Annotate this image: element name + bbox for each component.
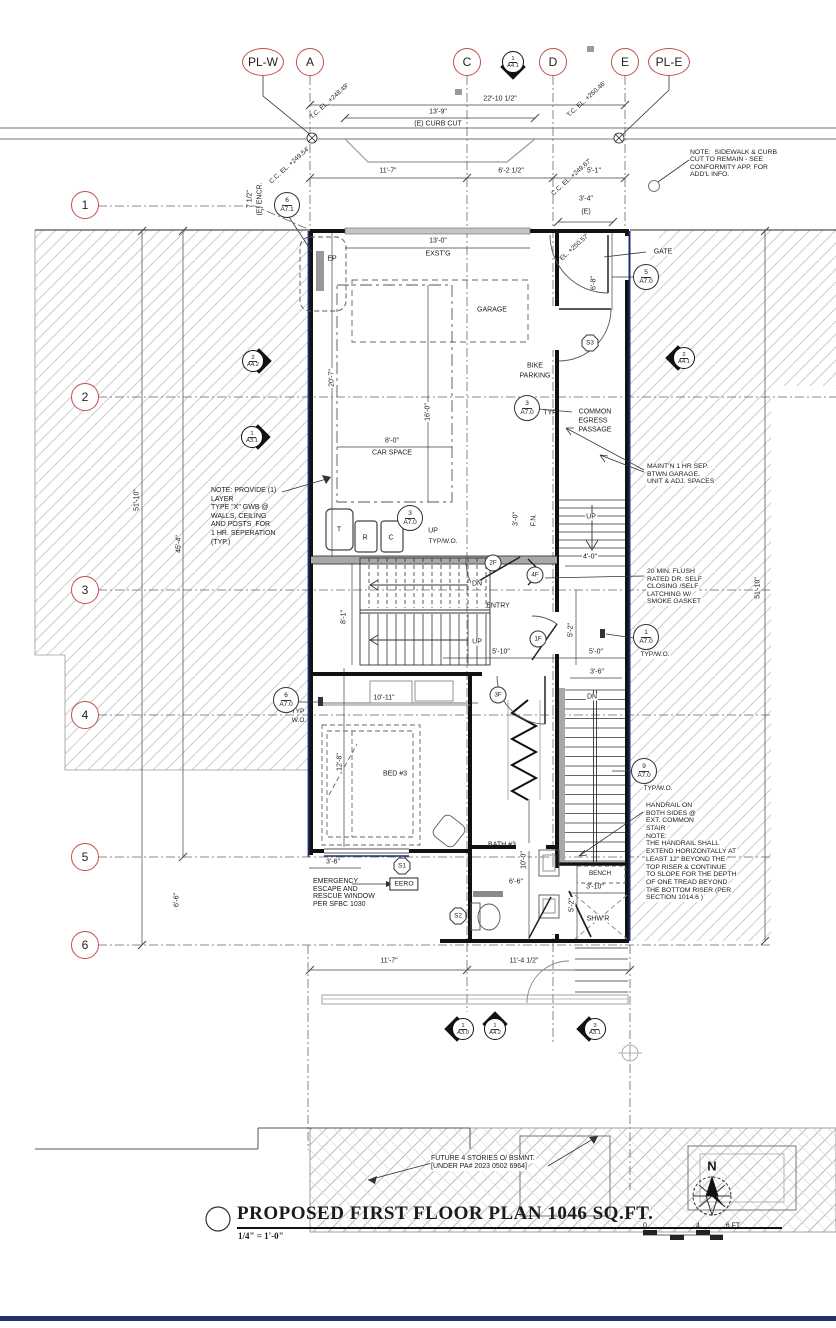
future-note: FUTURE 4 STORIES O/ BSMNT.[UNDER PA# 202… [430,1155,536,1171]
stair-direction-label: DN [586,694,598,701]
section-marker-2-a4.1: 2A4.1 [671,345,697,371]
maintain-note: MAINT'N 1 HR SEP.BTWN GARAGE,UNIT & ADJ.… [646,463,715,486]
dim-label: 8'-1" [341,609,348,625]
dim-label: 4'-0" [582,554,598,561]
grid-bubble-3: 3 [71,576,99,604]
eero-tag: EERO [389,878,418,891]
dim-label: 20'-7" [329,368,336,388]
room-label: PASSAGE [579,427,612,434]
door-20min-note: 20 MIN. FLUSHRATED DR. SELFCLOSING /SELF… [646,568,703,606]
dim-label: 5'-2" [568,622,575,638]
dim-label: 6'-2 1/2" [498,168,524,175]
callout-suffix: TYP/W.O. [429,539,458,546]
dim-label: 3'-6" [589,669,605,676]
plan-scale: 1/4" = 1'-0" [238,1231,284,1241]
grid-bubble-pl-w: PL-W [242,48,284,76]
room-label: COMMON [579,409,612,416]
detail-callout-3-a7.0: 3A7.0 [397,505,423,531]
dim-label: 5'-2" [569,897,576,913]
dim-label: 6'-6" [508,879,524,886]
sidewalk-lines [0,128,836,230]
grid-bubble-4: 4 [71,701,99,729]
dim-label: 3'-4" [579,196,593,203]
plan-linework [0,0,836,1328]
bin-label-t: T [337,527,341,534]
detail-callout-6-a7.1: 6A7.1 [274,192,300,218]
callout-suffix: W.O. [292,718,306,725]
door-tag-4f: 4F [527,567,544,584]
bin-label-c: C [388,535,393,542]
dim-label: 10'-0" [521,850,528,870]
grid-bubble-c: C [453,48,481,76]
dim-label: 5'-1" [587,168,601,175]
detail-callout-1-a7.0: 1A7.0 [633,624,659,650]
dim-label: 6'-8" [591,276,598,290]
door-tag-3f: 3F [490,687,507,704]
room-label: PARKING [520,373,551,380]
dim-label: 13'-0" [429,238,447,245]
handrail-note: HANDRAIL ONBOTH SIDES @EXT. COMMONSTAIRN… [645,802,737,902]
callout-suffix: TYP [543,410,557,417]
floor-plan-canvas: PROPOSED FIRST FLOOR PLAN 1046 SQ.FT. 1/… [0,0,836,1328]
fixtures [300,237,627,939]
bin-label-r: R [362,535,367,542]
dim-label: 8'-0" [384,438,400,445]
room-label: BED #3 [383,771,407,778]
dim-label: 13'-9" [429,109,447,116]
grid-bubble-d: D [539,48,567,76]
section-marker-2-a4.2: 2A4.2 [240,348,266,374]
room-label: SHW'R [586,916,611,923]
dim-label: 3'-6" [325,859,341,866]
section-marker-3-a3.1: 3A3.1 [582,1016,608,1042]
dim-label: 3'-10" [585,884,605,891]
detail-callout-5-a7.0: 5A7.0 [633,264,659,290]
detail-callout-6-a7.0: 6A7.0 [273,687,299,713]
dim-label: 45'-4" [176,535,183,553]
grid-bubble-5: 5 [71,843,99,871]
grid-bubble-pl-e: PL-E [648,48,690,76]
dim-label: 51'-10" [755,577,762,599]
dim-label: 16'-0" [425,402,432,422]
scalebar-4: 4 [696,1223,700,1230]
plan-title: PROPOSED FIRST FLOOR PLAN 1046 SQ.FT. [237,1203,653,1225]
section-marker-1-a3.1: 1A3.1 [239,424,265,450]
section-marker-1-a4.2: 1A4.2 [482,1016,508,1042]
dim-label: 6'-6" [174,893,181,907]
dim-label: 3'-0" [513,512,520,526]
scalebar-0: 0 [643,1223,647,1230]
sidewalk-note: NOTE: SIDEWALK & CURBCUT TO REMAIN - SEE… [690,149,777,179]
dim-label: F.N. [531,514,538,526]
bottom-accent-bar [0,1316,836,1321]
dim-label: 22'-10 1/2" [483,96,516,103]
room-label: BATH #3 [488,842,516,849]
dim-label: (E) CURB CUT [414,121,461,128]
room-label: BENCH [589,871,611,877]
detail-callout-9-a7.0: 9A7.0 [631,758,657,784]
dim-label: 7 1/2" [247,190,254,208]
section-marker-1-a3.0: 1A3.0 [450,1016,476,1042]
callout-suffix: TYP/W.O. [643,786,674,793]
room-label: GATE [653,249,674,256]
room-label: ENTRY [486,603,510,610]
room-label: BIKE [527,363,543,370]
dim-label: (E) ENCR. [257,182,264,215]
room-label: GARAGE [477,307,507,314]
dim-label: (E) [581,209,590,216]
dim-label: 11'-7" [379,168,396,175]
grid-bubble-e: E [611,48,639,76]
gwb-note: NOTE: PROVIDE (1)LAYERTYPE "X" GWB @WALL… [211,487,276,547]
dim-label: 5'-10" [491,649,511,656]
grid-bubble-1: 1 [71,191,99,219]
grid-bubble-6: 6 [71,931,99,959]
dim-label: CAR SPACE [372,450,412,457]
electrical-panel-tag: EP [327,256,336,263]
dim-label: 12'-8" [337,752,344,772]
scalebar-6ft: 6 FT [726,1223,740,1230]
stair-direction-label: DN [471,581,483,588]
dim-label: 10'-11" [372,695,395,702]
emergency-note: EMERGENCYESCAPE ANDRESCUE WINDOWPER SFBC… [313,878,375,909]
grid-bubble-a: A [296,48,324,76]
door-tag-1f: 1F [530,631,547,648]
detail-callout-3-a7.0: 3A7.0 [514,395,540,421]
walls [309,228,630,941]
dim-label: 51'-10" [134,489,141,511]
stair-direction-label: UP [427,528,439,535]
hatch-regions [35,230,836,1232]
dim-label: 11'-7" [379,958,398,965]
north-label: N [707,1159,716,1174]
door-tag-2f: 2F [485,555,502,572]
stair-direction-label: UP [471,639,483,646]
dim-label: 5'-0" [588,649,604,656]
dim-label: EXST'G [425,251,450,258]
grid-bubble-2: 2 [71,383,99,411]
stair-direction-label: UP [585,514,597,521]
section-marker-1-a4.1: 1A4.1 [500,49,526,75]
dim-label: 11'-4 1/2" [509,958,540,965]
callout-suffix: TYP/W.O. [640,652,671,659]
room-label: EGRESS [578,418,607,425]
